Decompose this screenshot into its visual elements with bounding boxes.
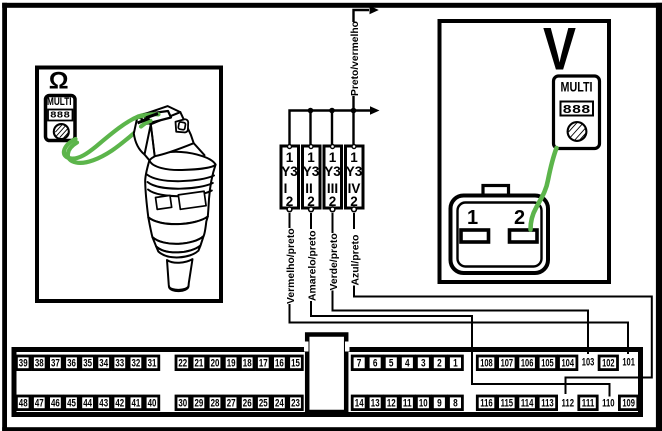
- svg-text:26: 26: [243, 398, 252, 410]
- svg-text:104: 104: [562, 358, 575, 370]
- svg-text:11: 11: [403, 398, 412, 410]
- svg-text:31: 31: [148, 358, 157, 370]
- svg-text:4: 4: [405, 358, 410, 370]
- svg-text:Azul/preto: Azul/preto: [351, 235, 362, 286]
- svg-text:Ω: Ω: [49, 68, 69, 95]
- svg-text:46: 46: [51, 398, 60, 410]
- svg-text:1: 1: [329, 150, 337, 165]
- svg-text:2: 2: [437, 358, 442, 370]
- svg-text:101: 101: [622, 357, 635, 369]
- svg-text:19: 19: [227, 358, 236, 370]
- svg-text:38: 38: [35, 358, 44, 370]
- svg-text:107: 107: [501, 358, 513, 370]
- svg-text:888: 888: [50, 110, 70, 121]
- svg-text:102: 102: [602, 358, 615, 370]
- svg-text:Y3: Y3: [346, 164, 363, 179]
- svg-text:106: 106: [521, 358, 534, 370]
- svg-text:35: 35: [83, 358, 92, 370]
- svg-text:1: 1: [467, 207, 478, 229]
- svg-text:42: 42: [115, 398, 124, 410]
- svg-text:115: 115: [501, 398, 513, 410]
- svg-text:Y3: Y3: [281, 164, 298, 179]
- svg-text:888: 888: [563, 104, 591, 117]
- svg-text:2: 2: [350, 194, 358, 209]
- svg-text:25: 25: [259, 398, 268, 410]
- svg-text:23: 23: [291, 398, 300, 410]
- svg-text:39: 39: [19, 358, 28, 370]
- svg-text:28: 28: [211, 398, 220, 410]
- svg-text:47: 47: [35, 398, 44, 410]
- svg-text:14: 14: [355, 398, 364, 410]
- svg-text:Preto/vermelho: Preto/vermelho: [350, 21, 361, 96]
- svg-text:2: 2: [307, 194, 315, 209]
- svg-text:109: 109: [622, 398, 635, 410]
- svg-text:27: 27: [227, 398, 236, 410]
- svg-text:Y3: Y3: [303, 164, 320, 179]
- svg-text:110: 110: [602, 398, 615, 410]
- svg-text:7: 7: [357, 358, 362, 370]
- svg-text:22: 22: [178, 358, 187, 370]
- svg-text:1: 1: [350, 150, 358, 165]
- svg-text:16: 16: [275, 358, 284, 370]
- svg-text:Verde/preto: Verde/preto: [329, 233, 340, 290]
- svg-text:45: 45: [67, 398, 76, 410]
- svg-text:V: V: [543, 16, 576, 83]
- svg-text:2: 2: [286, 194, 294, 209]
- svg-text:24: 24: [275, 398, 284, 410]
- svg-text:12: 12: [387, 398, 396, 410]
- svg-text:29: 29: [195, 398, 204, 410]
- svg-text:43: 43: [99, 398, 108, 410]
- svg-text:114: 114: [521, 398, 534, 410]
- svg-text:112: 112: [562, 398, 575, 410]
- svg-text:Vermelho/preto: Vermelho/preto: [286, 228, 297, 304]
- svg-text:1: 1: [453, 358, 458, 370]
- svg-text:30: 30: [178, 398, 187, 410]
- svg-text:1: 1: [307, 150, 315, 165]
- svg-text:9: 9: [437, 398, 442, 410]
- svg-text:8: 8: [453, 398, 458, 410]
- svg-text:111: 111: [582, 398, 595, 410]
- svg-text:40: 40: [148, 398, 157, 410]
- svg-text:18: 18: [243, 358, 252, 370]
- svg-text:21: 21: [195, 358, 204, 370]
- svg-text:116: 116: [480, 398, 493, 410]
- svg-text:3: 3: [421, 358, 426, 370]
- svg-text:41: 41: [132, 398, 141, 410]
- svg-text:6: 6: [373, 358, 378, 370]
- svg-text:108: 108: [480, 358, 493, 370]
- svg-text:MULTI: MULTI: [561, 80, 593, 95]
- svg-text:37: 37: [51, 358, 60, 370]
- svg-text:113: 113: [541, 398, 554, 410]
- svg-text:Amarelo/preto: Amarelo/preto: [308, 231, 319, 301]
- svg-text:17: 17: [259, 358, 268, 370]
- svg-text:48: 48: [19, 398, 28, 410]
- svg-text:105: 105: [541, 358, 554, 370]
- svg-text:36: 36: [67, 358, 76, 370]
- svg-text:13: 13: [371, 398, 380, 410]
- svg-text:20: 20: [211, 358, 220, 370]
- svg-text:Y3: Y3: [324, 164, 341, 179]
- svg-text:10: 10: [419, 398, 428, 410]
- svg-text:44: 44: [83, 398, 92, 410]
- svg-text:MULTI: MULTI: [47, 96, 72, 108]
- svg-text:5: 5: [389, 358, 394, 370]
- svg-text:15: 15: [291, 358, 300, 370]
- svg-text:103: 103: [582, 357, 595, 369]
- svg-text:34: 34: [99, 358, 108, 370]
- svg-text:32: 32: [132, 358, 141, 370]
- svg-text:1: 1: [286, 150, 294, 165]
- svg-text:33: 33: [115, 358, 124, 370]
- svg-text:2: 2: [514, 207, 525, 229]
- svg-text:2: 2: [329, 194, 337, 209]
